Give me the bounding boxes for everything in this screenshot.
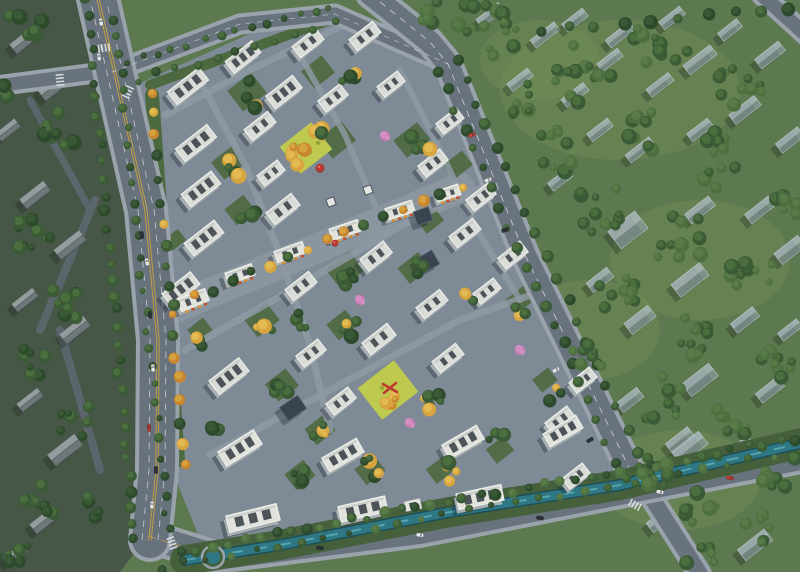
tree <box>568 346 578 356</box>
tree <box>536 27 546 37</box>
tree <box>703 8 715 20</box>
tree <box>511 242 523 254</box>
tree <box>135 271 144 280</box>
tree <box>95 128 106 139</box>
tree <box>412 267 424 279</box>
tree <box>380 397 392 409</box>
tree <box>422 403 436 417</box>
tree <box>661 483 668 490</box>
tree <box>248 23 256 31</box>
tree <box>82 417 93 428</box>
tree <box>166 46 174 54</box>
tree <box>65 410 72 417</box>
tree <box>393 519 402 528</box>
tree <box>631 479 640 488</box>
tree <box>739 427 752 440</box>
tree <box>304 246 312 254</box>
tree <box>127 519 137 529</box>
tree <box>297 538 306 547</box>
tree <box>755 5 767 17</box>
tree <box>594 280 605 291</box>
tree <box>162 492 171 501</box>
tree <box>140 288 146 294</box>
tree <box>90 112 100 122</box>
tree <box>731 280 742 291</box>
tree <box>752 267 760 275</box>
tree <box>124 60 130 66</box>
tree <box>296 474 309 487</box>
tree <box>456 493 466 503</box>
tree <box>177 438 189 450</box>
tree <box>231 27 237 33</box>
tree <box>167 330 178 341</box>
tree <box>313 8 321 16</box>
tree <box>488 502 494 508</box>
tree <box>130 199 139 208</box>
tree <box>716 163 727 174</box>
tree <box>156 415 162 421</box>
tree <box>274 381 286 393</box>
tree <box>162 263 170 271</box>
tree <box>591 415 600 424</box>
tree <box>589 208 602 221</box>
tree <box>508 488 518 498</box>
tree <box>582 338 595 351</box>
vehicle <box>154 466 158 473</box>
tree <box>423 142 438 157</box>
tree <box>540 301 552 313</box>
vehicle <box>150 501 154 508</box>
tree <box>549 164 557 172</box>
tree <box>404 129 419 144</box>
tree <box>231 47 240 56</box>
tree <box>781 3 795 17</box>
tree <box>479 118 491 130</box>
tree <box>478 490 487 499</box>
tree <box>571 95 586 110</box>
tree <box>325 5 331 11</box>
red-sphere-sculpture <box>316 164 324 173</box>
tree <box>512 498 519 505</box>
tree <box>13 216 27 230</box>
tree <box>743 74 752 83</box>
tree <box>767 260 776 269</box>
vehicle <box>148 311 152 319</box>
tree <box>114 49 123 58</box>
tree <box>724 259 740 275</box>
tree <box>536 130 547 141</box>
tree <box>319 421 327 429</box>
tree <box>502 27 510 35</box>
tree <box>614 467 626 479</box>
tree <box>290 158 304 172</box>
tree <box>128 179 135 186</box>
tree <box>83 401 95 413</box>
tree <box>780 206 788 214</box>
tree <box>642 140 653 151</box>
tree <box>621 129 637 145</box>
tree <box>181 460 191 470</box>
tree <box>525 91 533 99</box>
tree <box>492 142 504 154</box>
tree <box>272 39 279 46</box>
tree <box>152 380 159 387</box>
tree <box>479 21 490 32</box>
tree <box>452 467 460 475</box>
tree <box>343 69 357 83</box>
vehicle <box>147 424 151 431</box>
tree <box>674 470 682 478</box>
tree <box>471 101 479 109</box>
tree <box>600 219 612 231</box>
tree <box>42 506 53 517</box>
tree <box>87 30 96 39</box>
tree <box>715 89 727 101</box>
tree <box>154 176 162 184</box>
tree <box>399 206 407 214</box>
rendering-canvas <box>0 0 800 572</box>
tree <box>542 250 554 262</box>
tree <box>231 168 247 184</box>
tree <box>511 302 521 312</box>
tree <box>320 535 327 542</box>
tree <box>264 261 276 273</box>
tree <box>633 24 643 34</box>
tree <box>246 267 255 276</box>
tree <box>301 523 313 535</box>
tree <box>149 107 158 116</box>
tree <box>89 80 97 88</box>
tree <box>166 524 174 532</box>
tree <box>618 17 631 30</box>
tree <box>659 457 674 472</box>
vehicle <box>151 364 155 371</box>
tree <box>25 213 39 227</box>
tree <box>711 403 723 415</box>
tree <box>59 140 70 151</box>
tree <box>606 289 617 300</box>
tree <box>322 431 329 438</box>
tree <box>309 26 317 34</box>
tree <box>164 281 174 291</box>
tree <box>148 129 158 139</box>
tree <box>778 479 792 493</box>
tree <box>346 530 352 536</box>
tree <box>171 64 178 71</box>
tree <box>120 408 129 417</box>
tree <box>718 143 729 154</box>
tree <box>235 212 247 224</box>
tree <box>120 86 128 94</box>
tree <box>444 498 454 508</box>
tree <box>118 385 129 396</box>
tree <box>710 182 722 194</box>
tree <box>745 440 754 449</box>
tree <box>119 69 128 78</box>
tree <box>765 523 774 532</box>
tree <box>217 31 226 40</box>
tree <box>756 441 767 452</box>
tree <box>460 289 471 300</box>
tree <box>243 75 255 87</box>
tree <box>112 32 120 40</box>
tree <box>573 376 584 387</box>
tree <box>444 475 455 486</box>
tree <box>693 214 704 225</box>
tree <box>485 436 492 443</box>
tree <box>250 42 258 50</box>
tree <box>182 43 189 50</box>
tree <box>632 447 644 459</box>
tree <box>766 279 773 286</box>
tree <box>71 288 83 300</box>
tree <box>506 39 520 53</box>
tree <box>108 291 120 303</box>
tree <box>107 274 119 286</box>
tree <box>551 77 560 86</box>
tree <box>673 237 689 253</box>
tree <box>587 227 596 236</box>
tree <box>673 251 685 263</box>
tree <box>592 194 599 201</box>
tree <box>529 227 540 238</box>
tree <box>523 80 532 89</box>
tree <box>771 454 778 461</box>
tree <box>99 140 107 148</box>
tree <box>546 130 556 140</box>
tree <box>113 341 123 351</box>
tree <box>224 541 232 549</box>
tree <box>286 526 296 536</box>
tree <box>241 534 251 544</box>
tree <box>744 454 753 463</box>
tree <box>411 145 421 155</box>
tree <box>112 322 123 333</box>
tree <box>680 313 690 323</box>
tree <box>572 317 581 326</box>
tree <box>108 260 116 268</box>
tree <box>627 289 636 298</box>
tree <box>512 26 519 33</box>
tree <box>615 210 623 218</box>
tree <box>273 544 282 553</box>
vehicle <box>97 53 102 61</box>
tree <box>622 274 631 283</box>
tree <box>161 240 173 252</box>
tree <box>121 422 132 433</box>
tree <box>520 308 531 319</box>
tree <box>144 344 153 353</box>
tree <box>652 44 666 58</box>
tree <box>205 421 220 436</box>
tree <box>438 510 445 517</box>
tree <box>202 557 209 564</box>
tree <box>126 471 137 482</box>
vehicle <box>316 546 324 550</box>
tree <box>656 240 667 251</box>
tree <box>137 254 145 262</box>
tree <box>556 493 563 500</box>
tree <box>54 299 64 309</box>
tree <box>689 485 705 501</box>
tree <box>148 89 157 98</box>
tree <box>599 301 611 313</box>
tree <box>726 445 734 453</box>
tree <box>190 546 201 557</box>
tree <box>39 349 53 363</box>
tree <box>90 45 98 53</box>
tree <box>112 303 122 313</box>
tree <box>466 0 480 14</box>
tree <box>105 243 115 253</box>
tree <box>543 394 556 407</box>
tree <box>12 240 27 255</box>
tree <box>710 148 719 157</box>
tree <box>52 106 66 120</box>
tree <box>283 252 294 263</box>
tree <box>18 344 29 355</box>
tree <box>371 525 380 534</box>
tree <box>480 164 488 172</box>
tree <box>109 16 119 26</box>
tree <box>344 329 359 344</box>
tree <box>663 398 674 409</box>
tree <box>588 22 599 33</box>
tree <box>757 538 766 547</box>
tree <box>500 18 508 26</box>
tree <box>225 163 233 171</box>
tree <box>694 349 704 359</box>
tree <box>347 513 357 523</box>
tree <box>551 64 563 76</box>
tree <box>600 439 608 447</box>
tree <box>174 418 186 430</box>
tree <box>89 92 99 102</box>
tree <box>469 144 477 152</box>
tree <box>27 364 34 371</box>
tree <box>770 359 780 369</box>
tree <box>437 398 444 405</box>
tree <box>640 116 652 128</box>
tree <box>12 9 28 25</box>
tree <box>690 325 701 336</box>
tree <box>161 510 167 516</box>
tree <box>586 62 594 70</box>
tree <box>679 555 694 570</box>
tree <box>604 69 618 83</box>
tree <box>24 542 31 549</box>
tree <box>511 185 520 194</box>
tree <box>422 14 432 24</box>
tree <box>47 284 60 297</box>
tree <box>520 208 530 218</box>
tree <box>643 453 653 463</box>
tree <box>332 18 340 26</box>
tree <box>462 27 472 37</box>
tree <box>693 231 707 245</box>
tree <box>677 339 685 347</box>
tree <box>597 361 607 371</box>
tree <box>339 226 350 237</box>
tree <box>576 187 587 198</box>
tree <box>35 479 48 492</box>
tree <box>704 167 713 176</box>
tree <box>119 440 129 450</box>
tree <box>636 467 649 480</box>
tree <box>322 234 332 244</box>
tree <box>151 67 161 77</box>
tree <box>28 25 42 39</box>
tree <box>410 502 420 512</box>
tree <box>561 137 574 150</box>
tree <box>77 431 87 441</box>
tree <box>675 216 688 229</box>
tree <box>45 232 56 243</box>
tree <box>122 453 131 462</box>
tree <box>702 500 718 516</box>
tree <box>574 358 587 371</box>
tree <box>459 184 467 192</box>
tree <box>584 395 593 404</box>
tree <box>174 394 185 405</box>
tree <box>696 451 708 463</box>
tree <box>112 367 124 379</box>
tree <box>571 475 580 484</box>
tree <box>151 150 162 161</box>
tree <box>290 470 298 478</box>
tree <box>248 100 263 115</box>
tree <box>647 411 661 425</box>
tree <box>342 319 352 329</box>
tree <box>332 519 341 528</box>
tree <box>610 220 621 231</box>
tree <box>140 52 146 58</box>
tree <box>487 182 497 192</box>
tree <box>555 476 565 486</box>
tree <box>465 505 473 513</box>
tree <box>643 15 657 29</box>
tree <box>559 336 571 348</box>
tree <box>508 106 520 118</box>
tree <box>125 486 137 498</box>
tree <box>289 143 298 152</box>
tree <box>177 547 186 556</box>
tree <box>214 54 223 63</box>
tree <box>535 494 543 502</box>
tree <box>62 303 73 314</box>
tree <box>294 308 304 318</box>
tree <box>424 500 435 511</box>
tree <box>179 557 187 565</box>
tree <box>116 356 125 365</box>
tree <box>316 524 324 532</box>
tree <box>493 203 504 214</box>
tree <box>774 370 789 385</box>
tree <box>254 546 260 552</box>
tree <box>434 188 446 200</box>
tree <box>611 402 619 410</box>
tree <box>297 143 311 157</box>
tree <box>778 193 791 206</box>
tree <box>31 497 40 506</box>
tree <box>160 472 169 481</box>
tree <box>125 502 136 513</box>
tree <box>159 220 168 229</box>
tree <box>731 6 741 16</box>
tree <box>296 323 305 332</box>
tree <box>651 34 659 42</box>
tree <box>349 274 358 283</box>
